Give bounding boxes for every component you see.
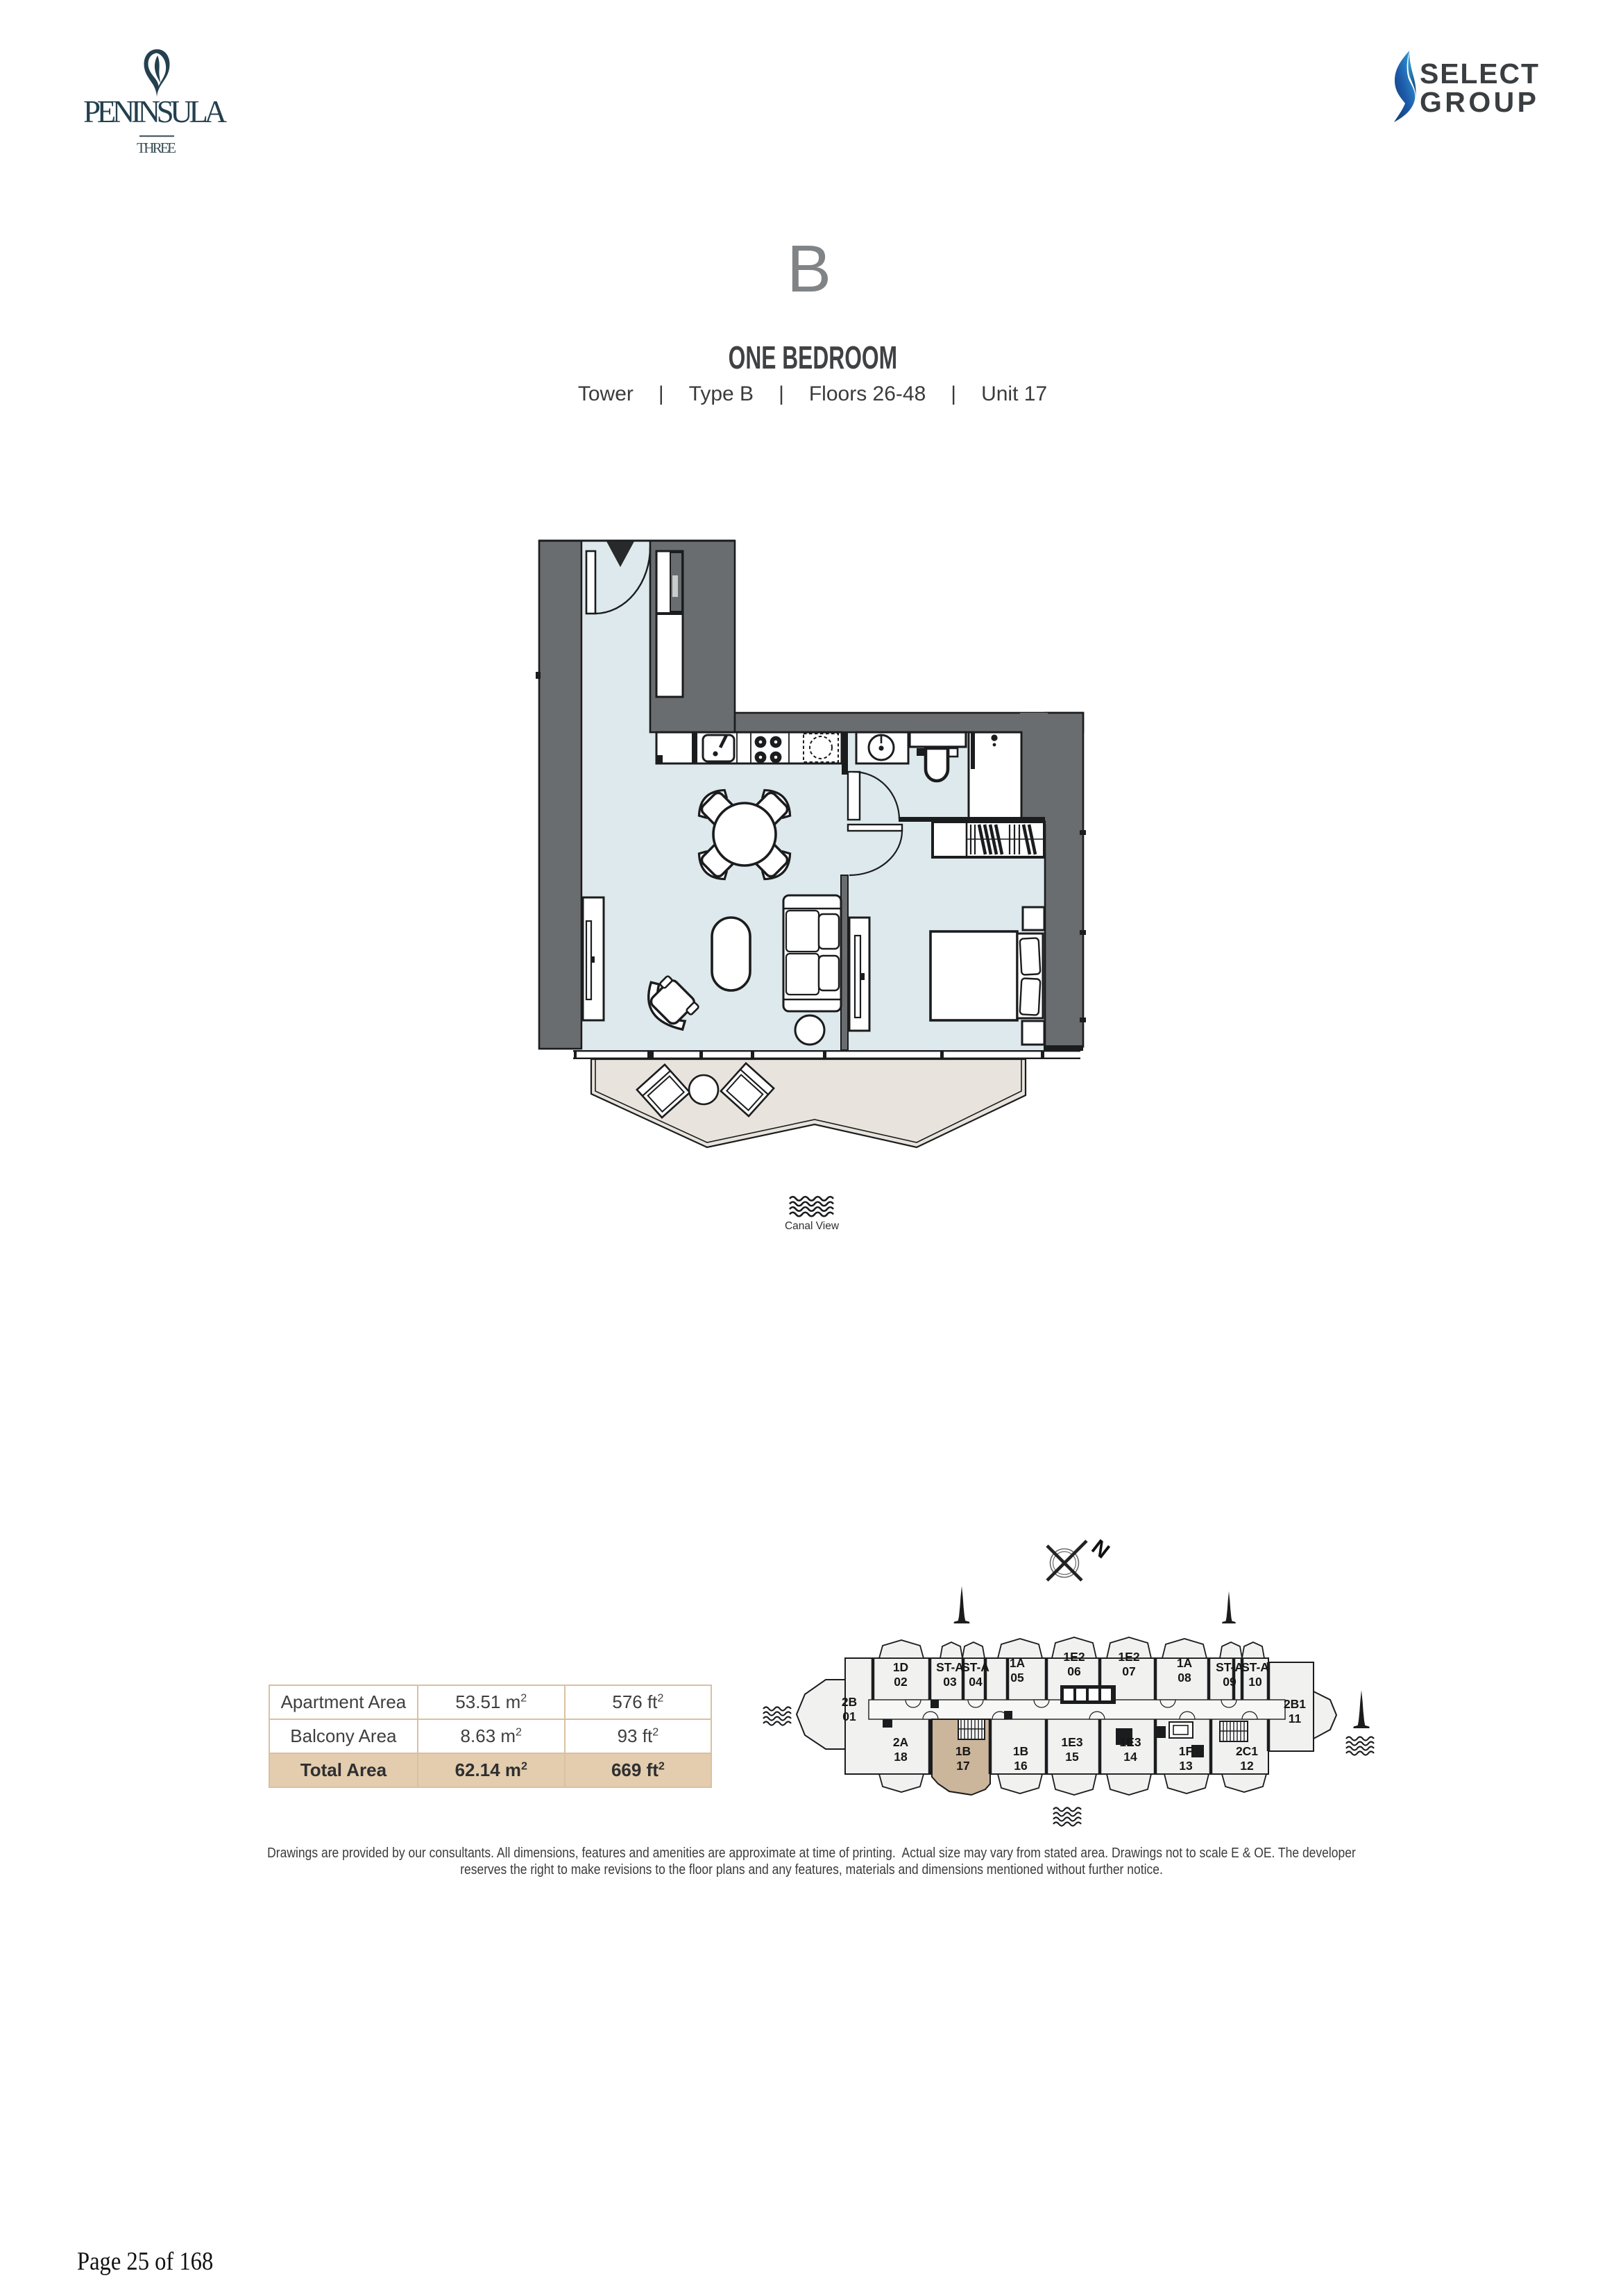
svg-text:1F13: 1F13: [1179, 1744, 1193, 1773]
svg-text:PENINSULA: PENINSULA: [83, 94, 228, 129]
svg-text:N: N: [1087, 1535, 1114, 1563]
svg-text:Canal View: Canal View: [785, 1220, 840, 1232]
svg-text:1D02: 1D02: [893, 1660, 908, 1689]
svg-text:1A05: 1A05: [1010, 1656, 1026, 1685]
svg-text:2A18: 2A18: [893, 1735, 909, 1764]
svg-text:GROUP: GROUP: [1420, 86, 1536, 118]
svg-text:THREE: THREE: [137, 140, 176, 156]
svg-text:1B17: 1B17: [955, 1744, 971, 1773]
svg-text:SELECT: SELECT: [1420, 58, 1538, 90]
svg-text:1B16: 1B16: [1013, 1744, 1028, 1773]
svg-text:2B01: 2B01: [842, 1695, 857, 1723]
svg-text:1A08: 1A08: [1177, 1656, 1193, 1685]
